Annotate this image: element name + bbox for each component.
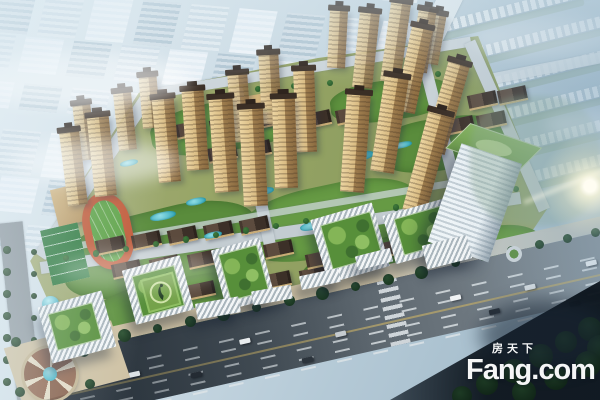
cloud-wisp [60, 250, 220, 290]
fang-watermark: 房天下 Fang.com [466, 344, 595, 385]
background-building-block [0, 0, 38, 35]
tree [118, 329, 131, 342]
background-building-block [133, 0, 182, 47]
fountain-water [43, 367, 57, 381]
tree [383, 274, 394, 285]
tree [273, 223, 279, 229]
green-roof-garden [48, 302, 102, 351]
tree [243, 227, 249, 233]
tree [327, 80, 333, 86]
tree [393, 204, 399, 210]
tree [31, 293, 38, 300]
cloud-wisp [10, 140, 180, 184]
background-building-block [277, 12, 326, 59]
tree [3, 378, 11, 386]
roundabout [506, 246, 522, 262]
residential-tower [239, 108, 268, 207]
tree-silhouette [452, 386, 472, 400]
tree [31, 315, 38, 322]
tree [435, 71, 441, 77]
tree [11, 337, 21, 347]
tree [185, 316, 196, 327]
background-building-block [0, 175, 40, 213]
tree [183, 236, 189, 242]
tree [3, 312, 11, 320]
tree [15, 387, 25, 397]
tree [3, 290, 11, 298]
background-building-block [37, 0, 86, 39]
tree [316, 287, 329, 300]
tree [415, 266, 428, 279]
tree [351, 282, 360, 291]
tree [3, 334, 11, 342]
background-building-block [85, 0, 134, 43]
residential-tower [327, 10, 348, 69]
tree [85, 379, 95, 389]
residential-tower [271, 98, 297, 189]
background-building-block [181, 4, 230, 51]
tree [3, 268, 11, 276]
aerial-development-rendering: 房天下 Fang.com [0, 0, 600, 400]
tree [3, 246, 11, 254]
watermark-logo-text: Fang.com [466, 356, 595, 385]
tree [153, 324, 162, 333]
